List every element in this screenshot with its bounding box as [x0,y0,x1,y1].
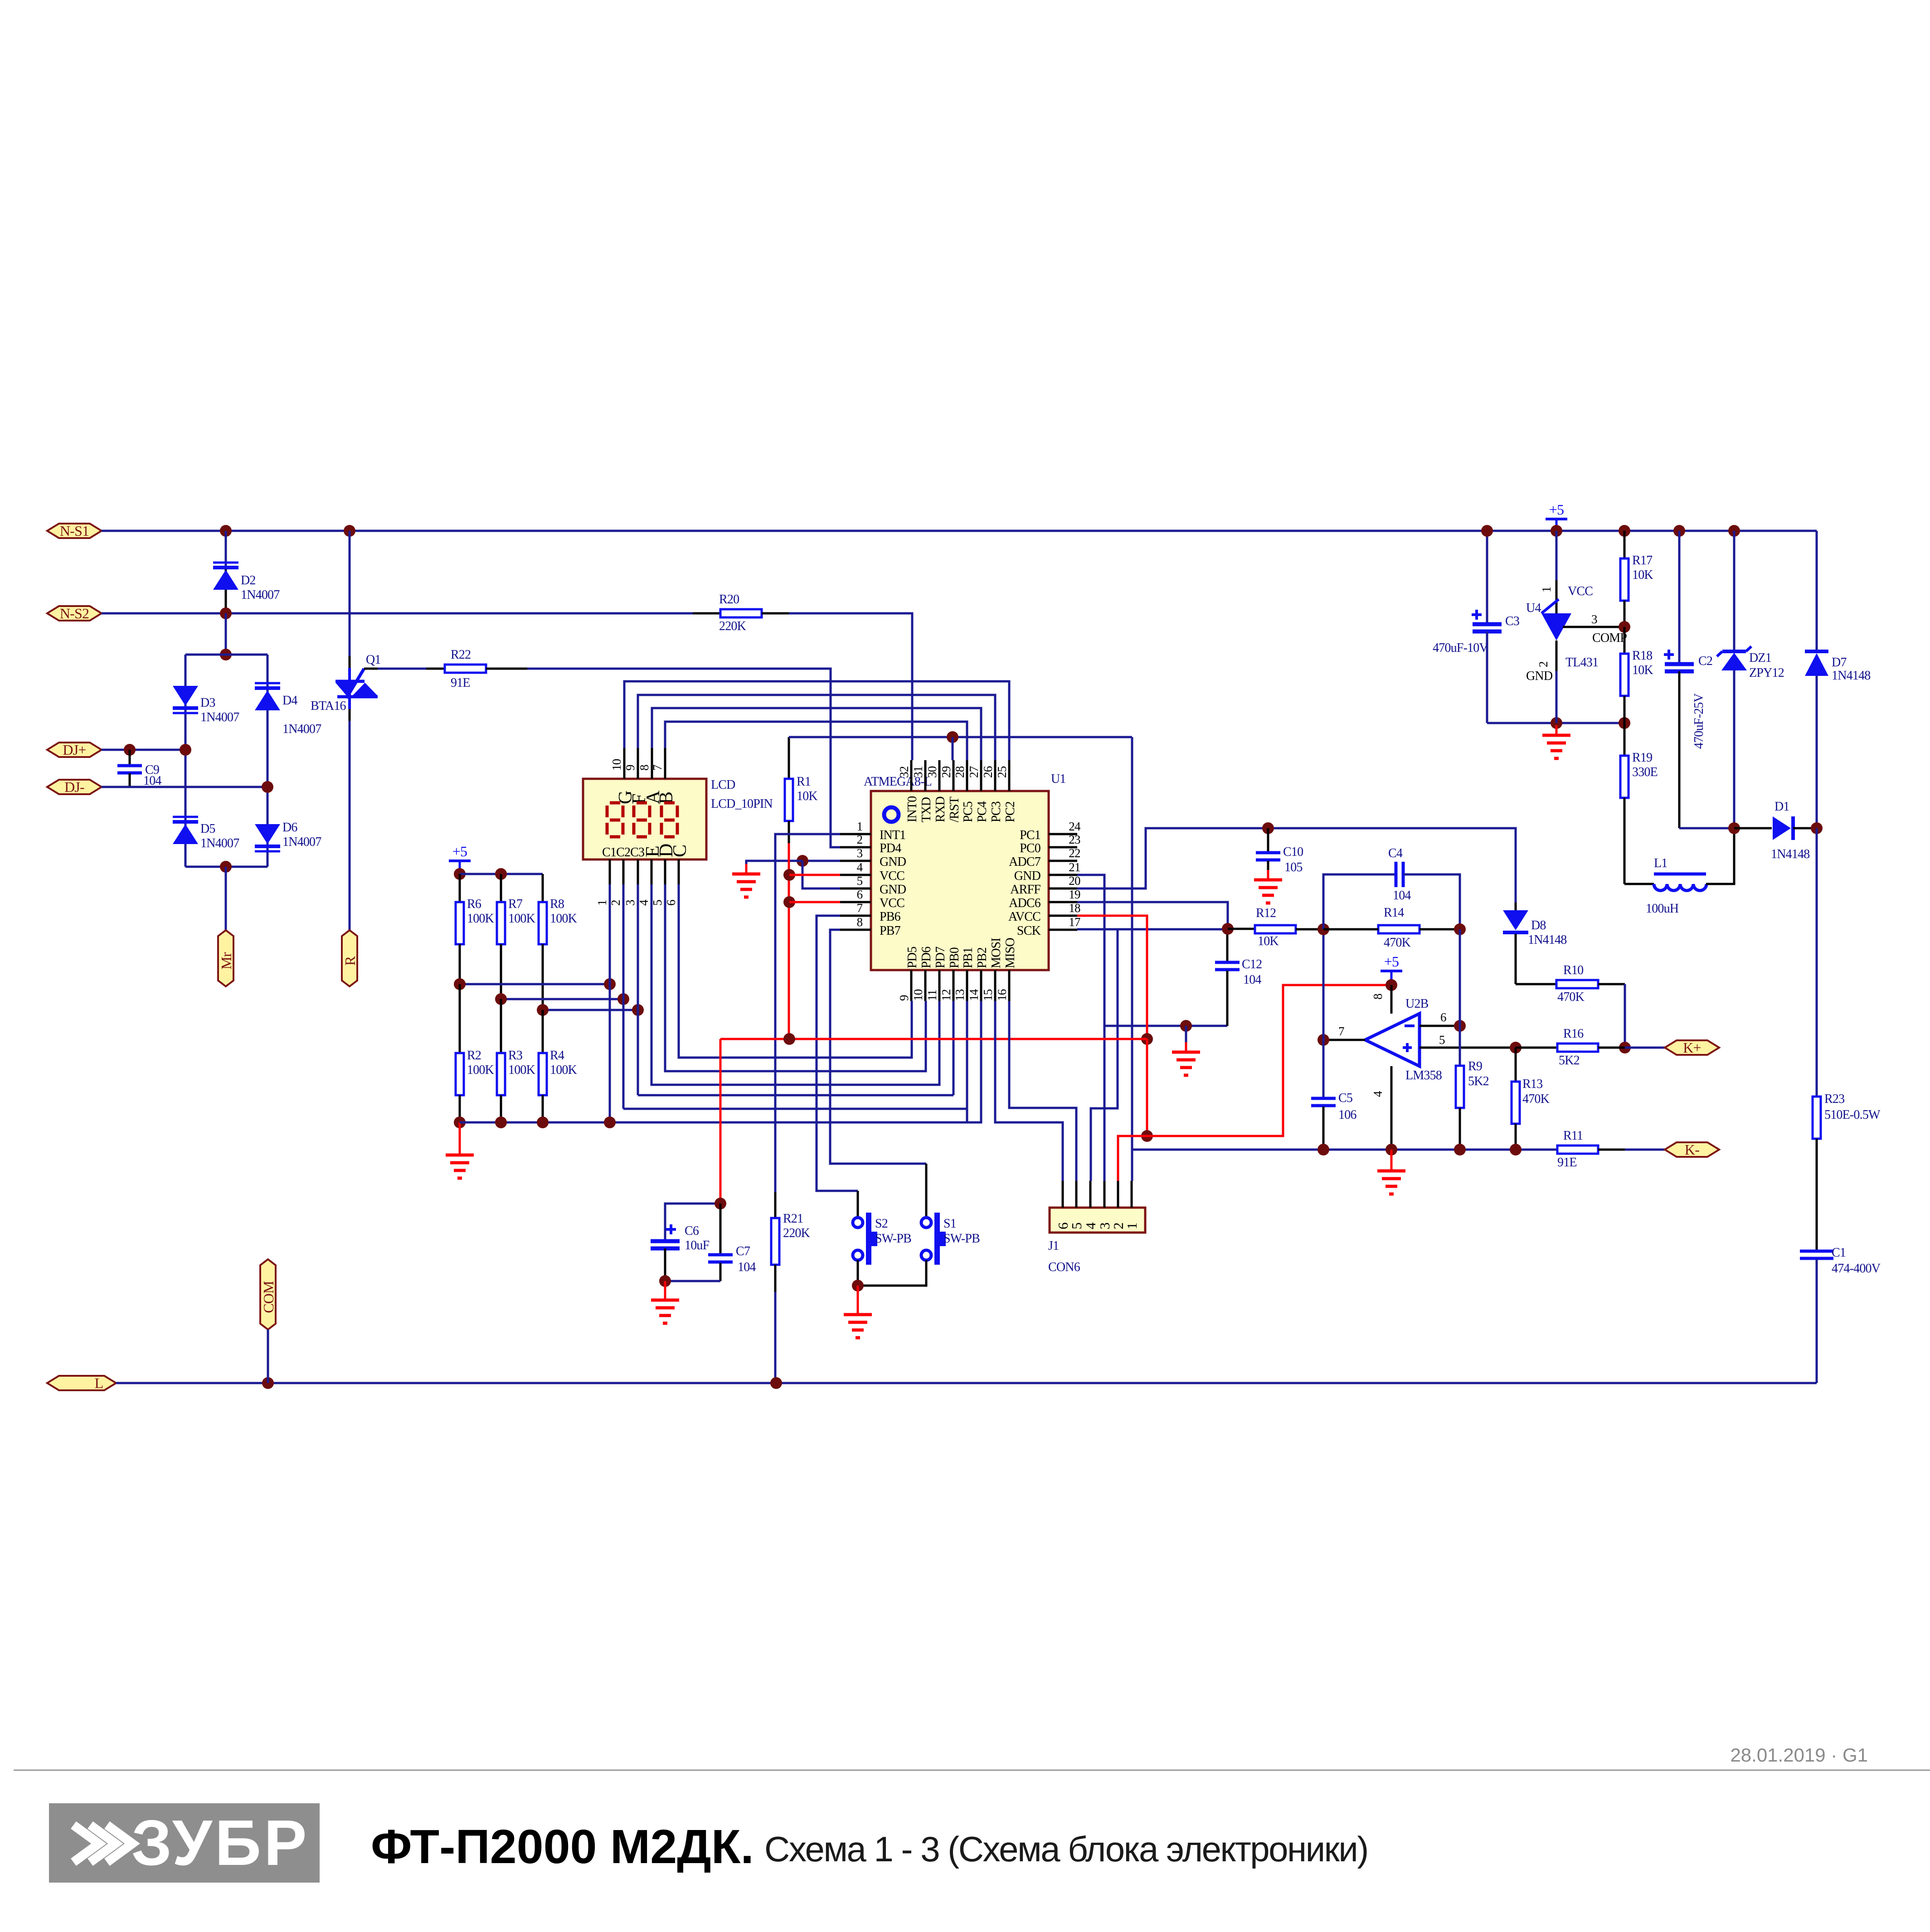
svg-text:470uF-10V: 470uF-10V [1433,641,1488,655]
svg-text:1: 1 [1124,1223,1140,1229]
svg-text:VCC: VCC [880,896,904,910]
svg-text:R16: R16 [1563,1027,1584,1041]
svg-text:ФТ-П2000 М2ДК.: ФТ-П2000 М2ДК. [371,1820,754,1874]
svg-text:1N4148: 1N4148 [1528,933,1566,947]
svg-text:23: 23 [1069,833,1080,846]
svg-text:VCC: VCC [880,869,904,883]
svg-text:C1: C1 [1832,1246,1846,1260]
svg-text:MOSI: MOSI [989,938,1003,968]
svg-text:PB6: PB6 [880,910,901,924]
svg-text:DJ+: DJ+ [63,742,86,758]
svg-text:22: 22 [1069,846,1080,860]
svg-text:+5: +5 [1384,953,1399,970]
svg-text:L: L [95,1375,103,1391]
svg-text:+5: +5 [1549,501,1564,518]
svg-text:24: 24 [1069,820,1081,833]
svg-text:L1: L1 [1654,856,1667,870]
svg-text:1N4148: 1N4148 [1832,669,1870,683]
svg-text:R2: R2 [467,1049,481,1063]
svg-text:R23: R23 [1824,1092,1844,1106]
svg-text:ADC6: ADC6 [1009,896,1041,910]
svg-text:R7: R7 [508,897,523,911]
svg-text:VCC: VCC [1568,584,1593,598]
svg-text:PC4: PC4 [975,801,989,822]
svg-text:D7: D7 [1832,655,1847,670]
svg-text:R: R [342,956,358,966]
svg-text:510E-0.5W: 510E-0.5W [1824,1108,1881,1122]
svg-text:R10: R10 [1563,963,1583,977]
svg-text:PC5: PC5 [961,801,975,822]
svg-text:D1: D1 [1774,800,1789,814]
svg-text:D2: D2 [241,573,256,587]
svg-text:INT0: INT0 [905,796,919,822]
svg-text:R19: R19 [1632,751,1652,765]
svg-text:R21: R21 [783,1212,803,1226]
svg-text:LM358: LM358 [1405,1068,1442,1083]
svg-text:10uF: 10uF [685,1238,710,1252]
svg-text:PC0: PC0 [1020,841,1040,855]
svg-text:R12: R12 [1256,906,1276,920]
svg-text:/RST: /RST [948,796,962,822]
svg-text:5: 5 [857,874,863,888]
svg-text:7: 7 [651,765,664,771]
svg-text:474-400V: 474-400V [1832,1262,1881,1276]
svg-text:25: 25 [995,766,1009,778]
svg-text:ЗУБР: ЗУБР [131,1807,310,1879]
svg-text:R4: R4 [550,1049,564,1063]
svg-text:15: 15 [981,989,995,1001]
svg-text:GND: GND [880,883,906,897]
svg-text:C6: C6 [685,1224,699,1238]
svg-text:K-: K- [1685,1141,1699,1158]
svg-text:N-S2: N-S2 [60,605,89,621]
svg-text:5: 5 [1069,1223,1084,1229]
svg-text:10K: 10K [1258,934,1279,948]
svg-text:PB1: PB1 [961,947,975,968]
svg-text:GND: GND [1014,869,1041,883]
svg-text:1N4007: 1N4007 [241,588,280,602]
svg-text:AVCC: AVCC [1008,910,1040,924]
svg-text:D5: D5 [200,822,215,836]
svg-text:PD6: PD6 [919,947,933,968]
svg-text:R3: R3 [508,1049,522,1063]
svg-text:LCD: LCD [711,778,735,792]
svg-text:104: 104 [143,774,161,788]
svg-text:DZ1: DZ1 [1749,651,1771,665]
svg-text:C5: C5 [1338,1091,1352,1105]
svg-text:1N4148: 1N4148 [1771,847,1809,861]
svg-text:9: 9 [897,995,911,1001]
svg-text:4: 4 [1371,1091,1385,1097]
svg-text:U4: U4 [1526,601,1541,615]
svg-text:PD5: PD5 [905,947,919,968]
svg-text:330E: 330E [1632,765,1658,779]
svg-text:ADC7: ADC7 [1009,855,1041,869]
svg-text:30: 30 [925,766,939,778]
svg-text:D6: D6 [282,820,297,835]
svg-text:470K: 470K [1384,936,1411,950]
svg-text:J1: J1 [1048,1239,1059,1253]
svg-text:GND: GND [1526,669,1553,683]
svg-text:CON6: CON6 [1048,1260,1080,1274]
svg-text:100K: 100K [467,912,494,926]
svg-text:R1: R1 [797,775,811,789]
svg-text:RXD: RXD [933,796,948,822]
svg-text:C1C2C3: C1C2C3 [602,845,644,859]
svg-text:C7: C7 [736,1244,750,1258]
svg-text:SW-PB: SW-PB [943,1232,980,1246]
svg-text:INT1: INT1 [880,828,905,842]
svg-text:3: 3 [857,846,863,860]
svg-text:12: 12 [939,989,953,1001]
svg-text:26: 26 [981,766,995,778]
svg-text:PB0: PB0 [948,947,962,968]
svg-text:100K: 100K [550,912,577,926]
svg-text:7: 7 [857,901,863,915]
svg-text:PC3: PC3 [989,801,1003,822]
svg-text:5: 5 [1439,1033,1445,1047]
svg-text:DJ-: DJ- [64,779,84,795]
svg-text:106: 106 [1338,1108,1356,1122]
svg-text:10K: 10K [1632,568,1653,582]
svg-text:4: 4 [857,860,863,874]
svg-text:10K: 10K [797,789,817,803]
svg-text:91E: 91E [451,676,470,690]
svg-text:TL431: TL431 [1565,655,1598,670]
svg-text:31: 31 [911,767,925,778]
svg-text:2: 2 [1536,661,1550,667]
svg-text:28: 28 [953,766,967,778]
svg-text:R11: R11 [1563,1129,1583,1143]
svg-text:K+: K+ [1683,1039,1701,1056]
svg-text:100K: 100K [508,1063,535,1077]
svg-text:470K: 470K [1557,990,1585,1004]
svg-text:C3: C3 [1505,614,1519,628]
svg-text:91E: 91E [1557,1155,1577,1170]
svg-text:U1: U1 [1051,772,1066,786]
svg-text:LCD_10PIN: LCD_10PIN [711,797,773,811]
svg-text:MISO: MISO [1003,938,1017,968]
svg-text:3: 3 [623,900,637,906]
svg-text:R18: R18 [1632,649,1652,663]
svg-text:R9: R9 [1468,1059,1482,1073]
svg-text:104: 104 [1393,888,1411,903]
svg-text:100K: 100K [508,912,535,926]
svg-text:104: 104 [738,1260,756,1274]
svg-text:COMP: COMP [1592,631,1627,645]
svg-text:1: 1 [595,900,609,906]
svg-text:D3: D3 [200,696,215,710]
svg-text:3: 3 [1591,612,1597,626]
svg-text:S1: S1 [943,1217,956,1231]
svg-text:100K: 100K [467,1063,494,1077]
svg-text:220K: 220K [783,1226,810,1240]
svg-text:28.01.2019 · G1: 28.01.2019 · G1 [1730,1744,1868,1766]
svg-text:GND: GND [880,855,906,869]
svg-text:13: 13 [953,989,967,1001]
svg-text:21: 21 [1069,860,1080,874]
svg-text:8: 8 [857,915,863,929]
svg-text:+5: +5 [452,843,467,859]
svg-text:C10: C10 [1283,845,1303,859]
svg-text:Q1: Q1 [366,653,381,667]
svg-text:COM: COM [260,1281,277,1313]
svg-text:1: 1 [1540,587,1553,592]
svg-text:16: 16 [995,989,1009,1001]
svg-text:29: 29 [939,766,953,778]
svg-text:32: 32 [897,766,911,778]
svg-text:R14: R14 [1384,906,1404,920]
svg-text:10: 10 [911,989,925,1001]
svg-text:SW-PB: SW-PB [875,1232,911,1246]
svg-text:10K: 10K [1632,663,1653,677]
svg-text:7: 7 [1338,1024,1344,1038]
svg-text:PB7: PB7 [880,924,901,938]
svg-text:1N4007: 1N4007 [282,722,321,736]
svg-text:PC2: PC2 [1003,801,1017,822]
svg-text:PD7: PD7 [933,947,948,968]
svg-text:9: 9 [623,765,637,771]
svg-text:R20: R20 [719,592,739,607]
svg-text:100K: 100K [550,1063,577,1077]
svg-text:27: 27 [967,766,981,778]
svg-text:5K2: 5K2 [1468,1074,1489,1088]
svg-text:C12: C12 [1242,957,1262,971]
svg-text:R22: R22 [451,648,471,662]
svg-text:R17: R17 [1632,553,1653,568]
svg-text:N-S1: N-S1 [60,523,89,539]
svg-text:1: 1 [857,820,863,833]
svg-text:ARFF: ARFF [1010,883,1040,897]
svg-text:5K2: 5K2 [1559,1053,1580,1068]
svg-text:105: 105 [1284,860,1303,874]
svg-text:2: 2 [857,833,863,846]
svg-text:Mr: Mr [218,952,234,970]
svg-text:C4: C4 [1388,846,1403,860]
svg-text:BTA16: BTA16 [311,699,346,713]
svg-text:C: C [670,845,690,857]
svg-text:6: 6 [1440,1010,1446,1024]
svg-text:S2: S2 [875,1217,888,1231]
svg-text:100uH: 100uH [1646,902,1679,916]
svg-text:PD4: PD4 [880,841,901,855]
svg-text:R13: R13 [1522,1077,1542,1091]
svg-text:104: 104 [1243,973,1261,987]
svg-text:SCK: SCK [1017,924,1041,938]
svg-text:U2B: U2B [1405,997,1429,1011]
svg-text:6: 6 [857,888,863,901]
svg-text:8: 8 [1371,994,1385,1000]
svg-text:D8: D8 [1531,918,1546,932]
svg-text:8: 8 [637,765,651,771]
svg-text:ZPY12: ZPY12 [1749,666,1784,680]
svg-text:Схема 1 - 3 (Схема блока элект: Схема 1 - 3 (Схема блока электроники) [764,1829,1368,1869]
svg-text:TXD: TXD [919,797,933,822]
svg-text:470uF-25V: 470uF-25V [1692,694,1706,749]
svg-text:R8: R8 [550,897,564,911]
svg-text:14: 14 [967,989,981,1001]
svg-text:1N4007: 1N4007 [282,835,321,849]
svg-text:1N4007: 1N4007 [200,710,239,724]
svg-text:PB2: PB2 [975,947,989,968]
svg-text:R6: R6 [467,897,481,911]
svg-text:470K: 470K [1522,1092,1550,1106]
svg-text:PC1: PC1 [1020,828,1040,842]
svg-text:1N4007: 1N4007 [200,836,239,850]
svg-text:4: 4 [1083,1222,1099,1229]
svg-text:220K: 220K [719,619,746,633]
svg-text:17: 17 [1069,915,1080,929]
svg-text:11: 11 [925,990,939,1001]
svg-text:10: 10 [610,759,623,771]
svg-text:D4: D4 [282,694,297,708]
svg-text:C2: C2 [1698,654,1712,668]
